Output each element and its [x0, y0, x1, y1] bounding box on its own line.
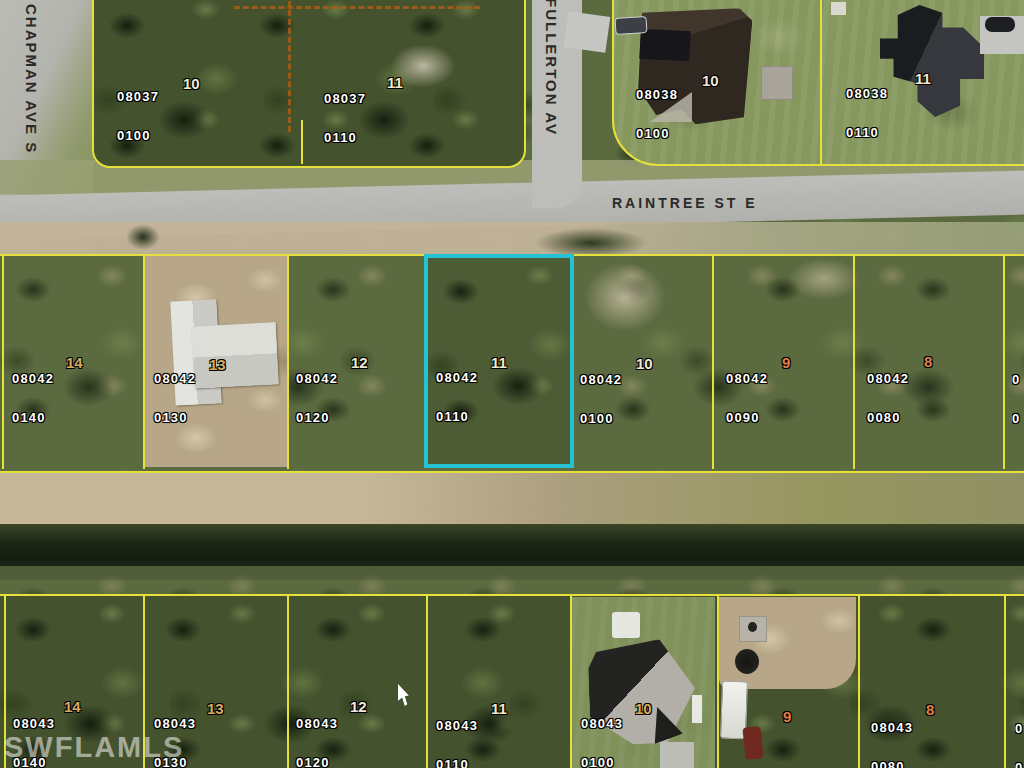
concrete-pad — [831, 2, 846, 15]
parcel-label: 08037 0110 — [324, 66, 366, 170]
gravel-yard — [719, 597, 856, 689]
parcel-line — [2, 254, 4, 469]
lot-number: 14 — [64, 699, 81, 714]
parcel-book: 08042 — [12, 372, 54, 385]
street-label-fullerton: FULLERTON AV — [543, 0, 560, 136]
parcel-label: 08042 0100 — [580, 347, 622, 451]
plat-dashed-line-vertical — [288, 0, 291, 132]
parcel-line — [858, 594, 860, 768]
car — [614, 16, 647, 35]
parcel-label: 08037 0100 — [117, 64, 159, 168]
parcel-book: 08042 — [580, 373, 622, 386]
parcel-number-partial: 0 — [1015, 761, 1024, 768]
parcel-label: 08043 0100 — [581, 691, 623, 768]
parcel-label: 08038 0100 — [636, 62, 678, 166]
parcel-label: 08042 0080 — [867, 346, 909, 450]
play-structure — [612, 612, 640, 638]
driveway — [660, 742, 694, 768]
parcel-label-partial: 0 0 — [1015, 696, 1024, 768]
lot-number: 12 — [351, 355, 368, 370]
parcel-number: 0130 — [154, 411, 196, 424]
lot-number: 10 — [636, 356, 653, 371]
parcel-label: 08043 0080 — [871, 695, 913, 768]
parcel-book: 08043 — [154, 717, 196, 730]
parcel-label: 08038 0110 — [846, 61, 888, 165]
lot-number: 9 — [782, 355, 790, 370]
sand-patch — [584, 262, 666, 332]
parcel-line — [287, 594, 289, 768]
parcel-line — [570, 594, 572, 768]
parcel-number: 0100 — [580, 412, 622, 425]
parcel-book-partial: 0 — [1012, 373, 1024, 386]
parcel-number: 0110 — [324, 131, 366, 144]
mls-watermark: SWFLAMLS — [4, 731, 184, 764]
parcel-line — [1004, 594, 1006, 768]
parcel-label: 08042 0140 — [12, 346, 54, 450]
lot-number: 12 — [350, 699, 367, 714]
roof-wing-gable — [192, 322, 279, 388]
parcel-number-partial: 0 — [1012, 412, 1024, 425]
lot-number: 11 — [491, 701, 507, 716]
street-label-chapman: CHAPMAN AVE S — [23, 4, 40, 154]
parcel-book: 08043 — [871, 721, 913, 734]
parcel-divider-line — [301, 120, 303, 164]
parcel-book-partial: 0 — [1015, 722, 1024, 735]
roadside-shrub — [126, 224, 160, 250]
parcel-label: 08042 0120 — [296, 346, 338, 450]
parcel-number: 0100 — [117, 129, 159, 142]
parcel-label: 08043 0110 — [436, 693, 478, 768]
parcel-label-highlighted: 08042 0110 — [436, 345, 478, 449]
parcel-label: 08043 0120 — [296, 691, 338, 768]
parcel-number: 0120 — [296, 411, 338, 424]
lot-number: 13 — [207, 701, 224, 716]
parcel-line — [853, 254, 855, 469]
parcel-book: 08037 — [117, 90, 159, 103]
parcel-number: 0110 — [436, 410, 478, 423]
plat-dashed-line-horizontal — [234, 6, 480, 9]
parcel-line — [143, 254, 145, 469]
lot-number: 10 — [635, 701, 652, 716]
parcel-line — [717, 594, 719, 768]
lot-number: 8 — [924, 354, 932, 369]
parcel-number: 0100 — [636, 127, 678, 140]
flat-roof-section — [639, 29, 691, 62]
fullerton-driveway — [564, 11, 611, 52]
lot-number: 10 — [183, 76, 200, 91]
parcel-book: 08043 — [436, 719, 478, 732]
lot-number: 11 — [387, 75, 403, 90]
parcel-number: 0080 — [867, 411, 909, 424]
parcel-label: 08042 0090 — [726, 346, 768, 450]
parcel-book: 08043 — [581, 717, 623, 730]
parcel-book: 08038 — [846, 87, 888, 100]
parcel-line — [1003, 254, 1005, 469]
canal-bushes — [0, 566, 1024, 596]
parcel-number: 0090 — [726, 411, 768, 424]
aerial-parcel-map[interactable]: RAINTREE ST E CHAPMAN AVE S FULLERTON AV… — [0, 0, 1024, 768]
ac-units — [692, 695, 702, 723]
parcel-label: 08042 0130 — [154, 346, 196, 450]
lot-number: 14 — [66, 355, 83, 370]
lot-number: 13 — [209, 357, 226, 372]
parcel-number: 0110 — [846, 126, 888, 139]
parcel-line — [287, 254, 289, 469]
lot-number: 8 — [926, 702, 934, 717]
well-dot — [748, 622, 757, 632]
pond-circle — [735, 649, 759, 674]
shed — [761, 66, 793, 100]
lot-number: 11 — [915, 71, 931, 86]
canal-bank-dirt — [0, 466, 1024, 530]
sand-patch — [788, 258, 860, 300]
parcel-number: 0140 — [12, 411, 54, 424]
parcel-number: 0110 — [436, 758, 478, 768]
car-red — [742, 726, 763, 760]
parcel-number: 0120 — [296, 756, 338, 768]
parcel-book: 08042 — [436, 371, 478, 384]
parcel-line — [426, 594, 428, 768]
car — [985, 17, 1015, 32]
parcel-number: 0080 — [871, 760, 913, 768]
parcel-number: 0100 — [581, 756, 623, 768]
parcel-label-partial: 0 0 — [1012, 347, 1024, 451]
lot-number: 10 — [702, 73, 719, 88]
parcel-book: 08043 — [13, 717, 55, 730]
lot-number: 9 — [783, 709, 791, 724]
parcel-book: 08042 — [154, 372, 196, 385]
parcel-book: 08043 — [296, 717, 338, 730]
lot-number: 11 — [491, 355, 507, 370]
parcel-book: 08042 — [726, 372, 768, 385]
parcel-book: 08038 — [636, 88, 678, 101]
parcel-divider-line — [820, 0, 822, 164]
parcel-book: 08042 — [296, 372, 338, 385]
parcel-book: 08037 — [324, 92, 366, 105]
street-label-raintree: RAINTREE ST E — [612, 195, 758, 211]
parcel-book: 08042 — [867, 372, 909, 385]
parcel-line — [712, 254, 714, 469]
